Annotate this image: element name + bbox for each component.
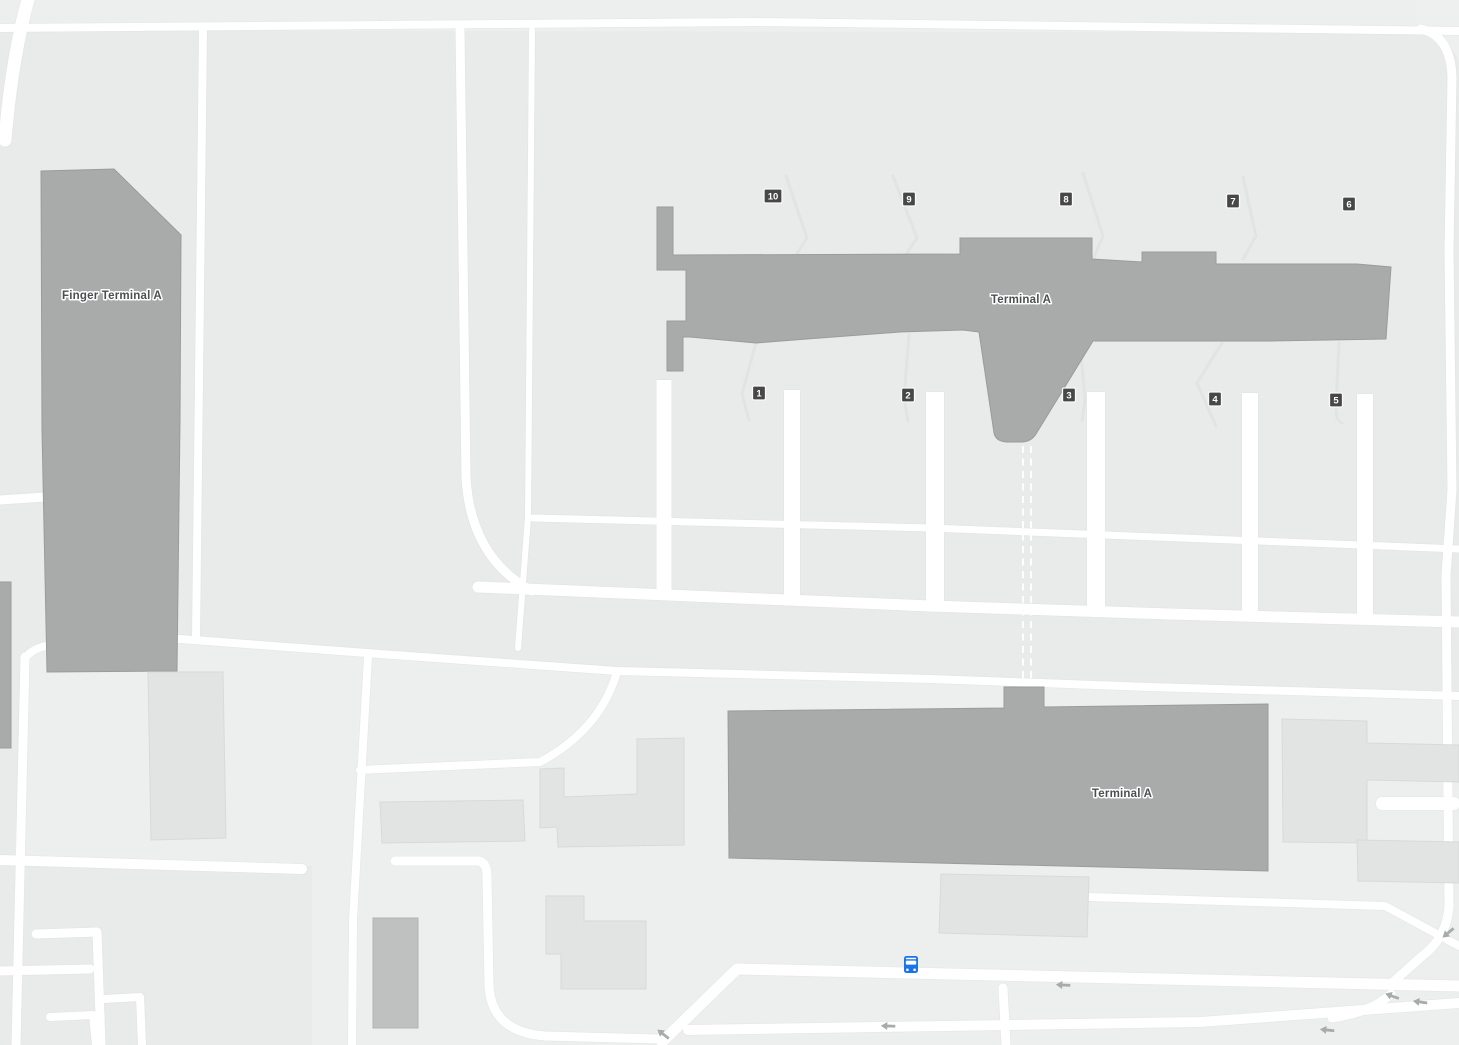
gate-badge-7: 7 [1227,194,1240,208]
building-light-mid-row[interactable] [380,800,525,843]
svg-text:3: 3 [1066,391,1071,402]
gate-badge-5: 5 [1330,393,1343,407]
gate-badge-8: 8 [1060,192,1073,206]
svg-text:9: 9 [906,195,911,206]
building-light-below-finger[interactable] [148,672,226,840]
gate-badge-4: 4 [1209,392,1222,406]
road-parking-row [0,969,90,971]
svg-text:4: 4 [1212,395,1218,406]
gate-badge-10: 10 [764,189,782,203]
svg-text:6: 6 [1346,200,1351,211]
svg-text:1: 1 [756,389,762,400]
building-light-east-complex[interactable] [1282,719,1459,843]
building-light-south-l[interactable] [546,896,646,989]
road-west-stub [0,497,45,500]
svg-text:8: 8 [1063,195,1068,206]
gate-badge-1: 1 [753,386,766,400]
building-west-sliver[interactable] [0,582,11,748]
label-finger-terminal-a: Finger Terminal A [62,290,162,302]
road-east-diagonal [1090,897,1459,946]
road-branch-mid [352,657,368,1045]
label-terminal-a-landside: Terminal A [1092,788,1152,800]
road-loop-curve [360,672,617,770]
svg-text:7: 7 [1230,197,1235,208]
road-frontage-spur [1003,988,1006,1045]
bus-icon[interactable] [904,956,918,973]
building-light-east-low[interactable] [1357,840,1459,883]
road-service-slot [1376,797,1459,810]
building-finger-terminal-a[interactable] [41,169,181,672]
gate-badge-2: 2 [902,388,915,402]
gate-badge-6: 6 [1343,197,1356,211]
building-light-below-terminal[interactable] [939,874,1089,937]
label-terminal-a-pier: Terminal A [991,294,1051,306]
svg-text:10: 10 [768,192,779,203]
svg-text:2: 2 [905,391,910,402]
left-arrow-icon [1319,1025,1334,1034]
gate-badge-9: 9 [903,192,916,206]
map-viewport[interactable]: Finger Terminal A Terminal A Terminal A … [0,0,1459,1045]
building-small-south[interactable] [373,918,418,1028]
map-canvas[interactable]: Finger Terminal A Terminal A Terminal A … [0,0,1459,1045]
svg-text:5: 5 [1333,396,1339,407]
building-terminal-a-landside[interactable] [728,687,1268,871]
road-north [0,22,1459,31]
building-light-l-shape[interactable] [540,738,684,847]
gate-badge-3: 3 [1063,388,1076,402]
